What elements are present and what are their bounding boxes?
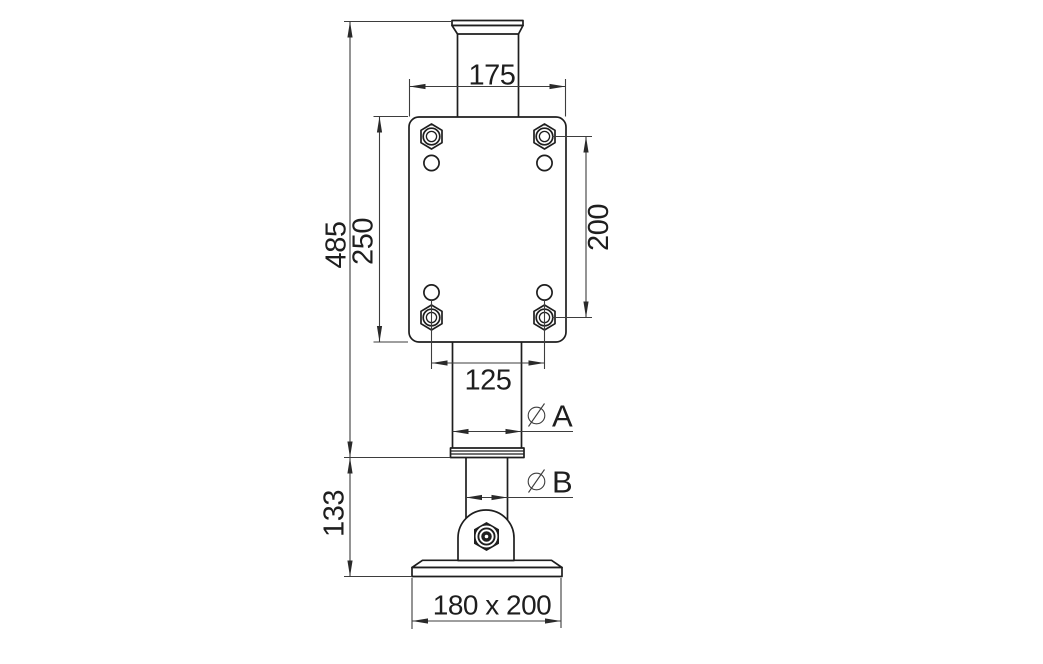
dim-hole-spacing-horizontal-label: 125 [465,365,512,397]
clamp-collar [451,448,525,458]
hex-nut-top-left [421,124,442,149]
dim-lower-height-label: 133 [319,490,351,537]
dim-plate-width: 175 [410,60,566,117]
top-cap [452,21,523,35]
diameter-icon [528,404,545,427]
base-plate-slab [412,568,562,577]
dim-hole-spacing-vertical-label: 200 [583,204,615,251]
pedestal-dimension-drawing: 175 250 485 133 200 [0,0,1043,664]
dim-diameter-b-label: B [552,465,573,500]
top-cap-taper [452,26,523,35]
dim-base-plate: 180 x 200 [412,578,561,629]
dim-upper-height-label: 485 [321,222,353,269]
dim-base-plate-label: 180 x 200 [433,590,552,621]
technical-drawing-canvas: 175 250 485 133 200 [0,0,1043,664]
dim-plate-height: 250 [348,117,409,343]
dim-lower-height: 133 [319,458,413,577]
base-plate-chamfer [412,560,562,567]
dim-diameter-b: B [466,465,573,501]
hex-nut-top-right [534,124,555,149]
dim-plate-width-label: 175 [469,60,516,92]
dim-diameter-a: A [453,399,574,435]
dim-diameter-a-label: A [552,399,573,434]
diameter-icon [528,470,545,493]
base-plate [412,560,562,576]
